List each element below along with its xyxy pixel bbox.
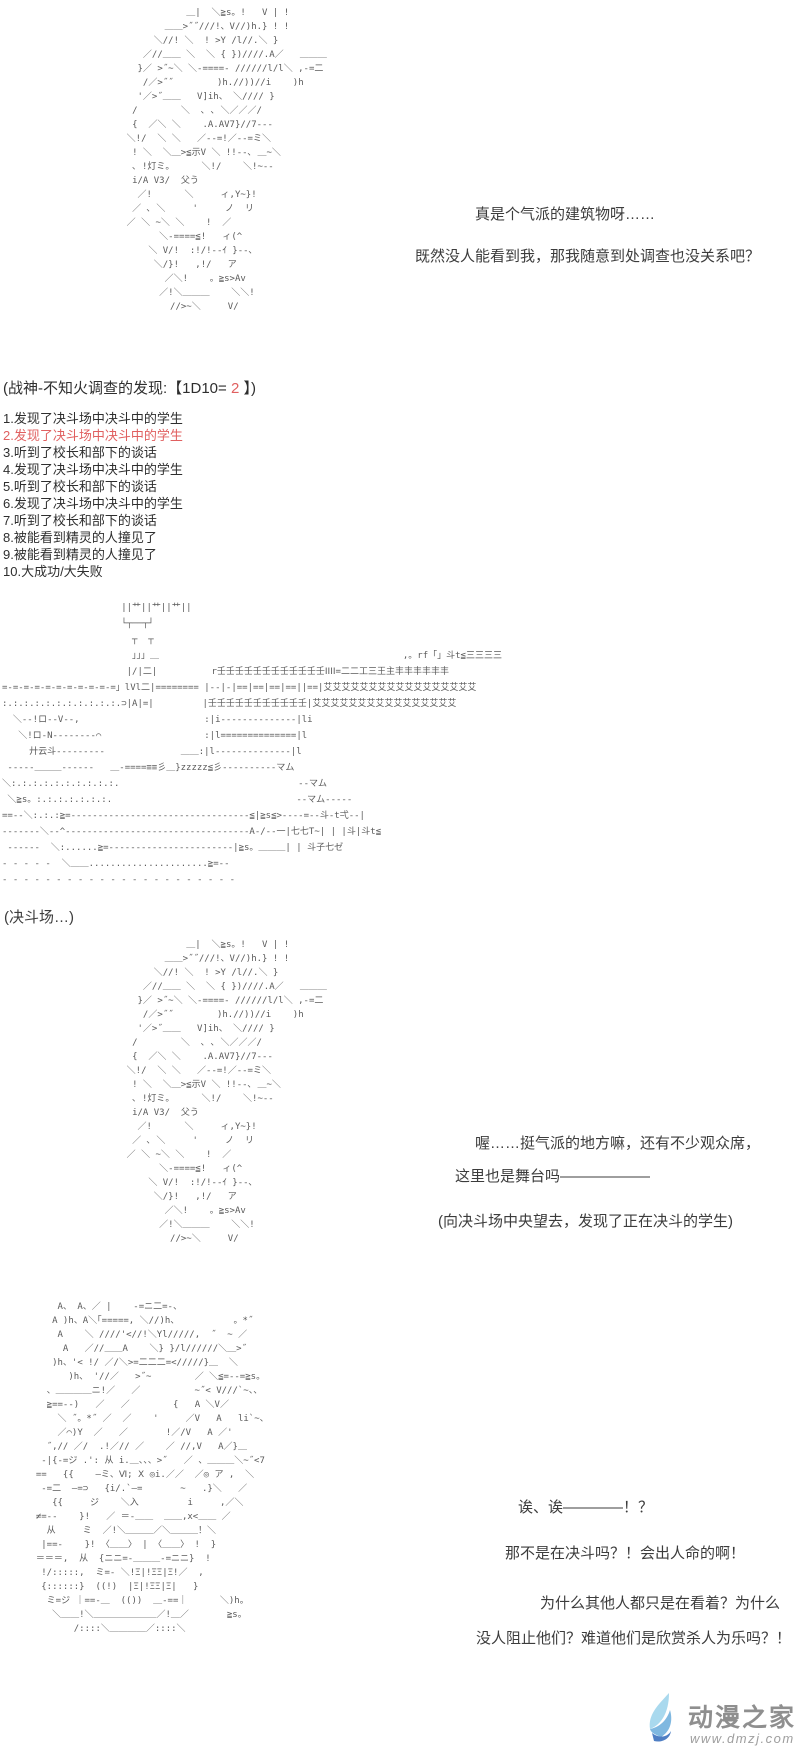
- ascii-art-character-scene2: ＿| ＼≧s。! V | ! ＿＿>˝˝///!、V//)h.} ! ! ＼//…: [105, 938, 327, 1246]
- arena-caption: (决斗场…): [4, 906, 74, 927]
- scene3-dialogue-3: 为什么其他人都只是在看着？为什么: [540, 1592, 780, 1613]
- dice-roll-suffix: 】): [243, 380, 256, 397]
- result-list-item-10: 10.大成功/大失败: [3, 563, 183, 580]
- result-list-item-9: 9.被能看到精灵的人撞见了: [3, 546, 183, 563]
- dmzj-wing-logo-icon: [642, 1692, 684, 1744]
- scene2-dialogue-1: 喔……挺气派的地方嘛，还有不少观众席，: [475, 1132, 760, 1153]
- ascii-art-duel-arena: ||艹||艹||艹|| └┬──┬┘ ┬ ┬ 」」」＿ ,。rf「」斗t≦三三三…: [2, 600, 502, 888]
- scene3-dialogue-2: 那不是在决斗吗？！会出人命的啊！: [505, 1542, 745, 1563]
- result-list-item-5: 5.听到了校长和部下的谈话: [3, 478, 183, 495]
- result-list-item-8: 8.被能看到精灵的人撞见了: [3, 529, 183, 546]
- result-list-item-3: 3.听到了校长和部下的谈话: [3, 444, 183, 461]
- site-url: www.dmzj.com: [690, 1731, 795, 1746]
- dice-roll-value: 2: [227, 380, 244, 397]
- scene2-narration: (向决斗场中央望去，发现了正在决斗的学生): [438, 1210, 733, 1231]
- dice-roll-line: (战神-不知火调查的发现:【1D10= 2 】): [3, 377, 256, 398]
- result-list-item-4: 4.发现了决斗场中决斗中的学生: [3, 461, 183, 478]
- result-list-item-7: 7.听到了校长和部下的谈话: [3, 512, 183, 529]
- site-name: 动漫之家: [688, 1698, 796, 1734]
- scene1-dialogue-1: 真是个气派的建筑物呀……: [475, 203, 655, 224]
- scene1-dialogue-2: 既然没人能看到我，那我随意到处调查也没关系吧？: [415, 245, 760, 266]
- dice-roll-prefix: (战神-不知火调查的发现:【1D10=: [3, 380, 227, 397]
- dice-result-list: 1.发现了决斗场中决斗中的学生 2.发现了决斗场中决斗中的学生 3.听到了校长和…: [3, 410, 183, 580]
- result-list-item-6: 6.发现了决斗场中决斗中的学生: [3, 495, 183, 512]
- ascii-art-duel-scene3: A、 A、／ | -=ニ二=-、 A )h、A＼｢=====, ＼//)h、 。…: [25, 1300, 269, 1636]
- comic-page: ＿| ＼≧s。! V | ! ＿＿>˝˝///!、V//)h.} ! ! ＼//…: [0, 0, 800, 1757]
- scene3-dialogue-1: 诶、诶————！？: [518, 1496, 653, 1517]
- scene2-dialogue-2: 这里也是舞台吗——————: [455, 1165, 650, 1186]
- scene3-dialogue-4: 没人阻止他们？难道他们是欣赏杀人为乐吗？！: [476, 1627, 791, 1648]
- ascii-art-character-scene1: ＿| ＼≧s。! V | ! ＿＿>˝˝///!、V//)h.} ! ! ＼//…: [105, 6, 327, 314]
- result-list-item-1: 1.发现了决斗场中决斗中的学生: [3, 410, 183, 427]
- result-list-item-2-highlighted: 2.发现了决斗场中决斗中的学生: [3, 427, 183, 444]
